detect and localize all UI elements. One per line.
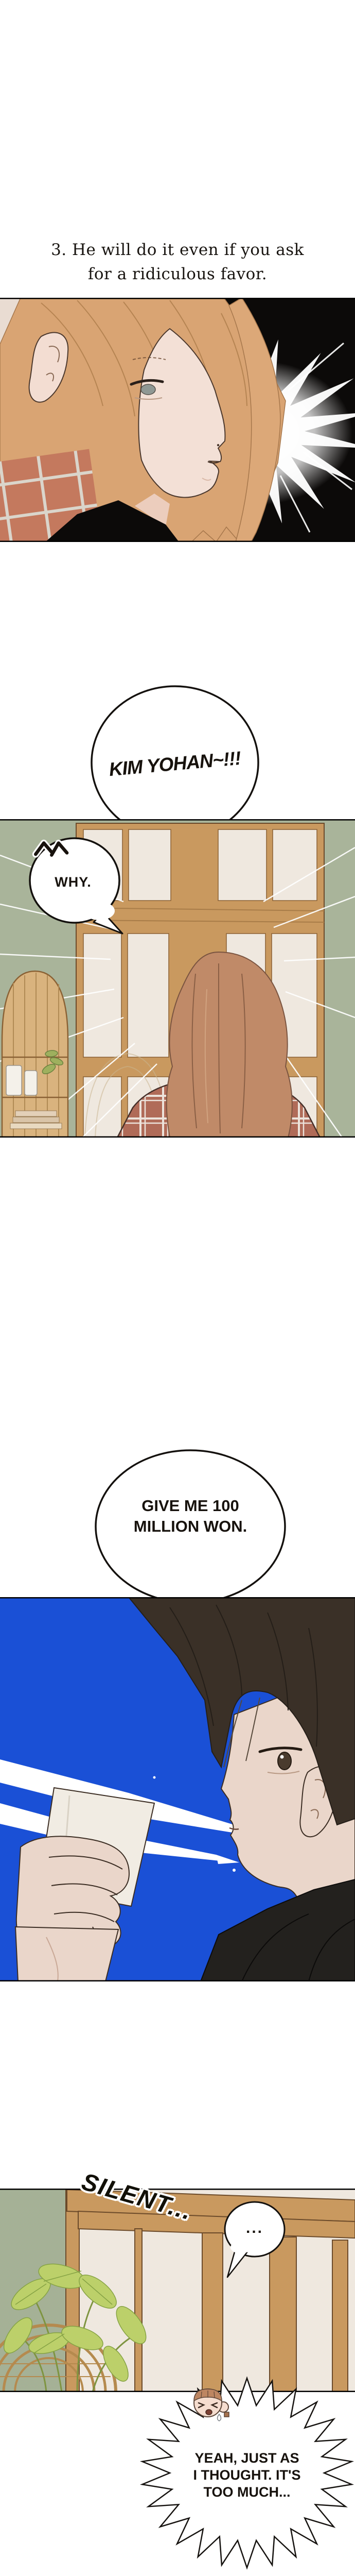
why-text: WHY. [55, 874, 92, 890]
birdcage-shelf [2, 971, 68, 1138]
demand-bubble: GIVE ME 100 MILLION WON. [90, 1445, 291, 1610]
webtoon-page: 3. He will do it even if you ask for a r… [0, 0, 355, 2576]
nostril [217, 444, 219, 446]
burst-text-line3: TOO MUCH... [203, 2484, 290, 2500]
ellipsis-text: ... [246, 2219, 263, 2236]
panel-2-artwork: WHY. [0, 819, 355, 1138]
chapter-title: 3. He will do it even if you ask for a r… [0, 238, 355, 286]
burst-bubble: YEAH, JUST AS I THOUGHT. IT'S TOO MUCH..… [134, 2369, 355, 2576]
chapter-title-line1: 3. He will do it even if you ask [0, 238, 355, 262]
panel-1-artwork [0, 298, 355, 542]
burst-text-line1: YEAH, JUST AS [194, 2450, 299, 2466]
panel-3-artwork [0, 1597, 355, 1981]
demand-text-line2: MILLION WON. [134, 1517, 247, 1535]
demand-text-line1: GIVE ME 100 [141, 1497, 239, 1515]
arm [15, 1927, 118, 1981]
chibi-mouth [206, 2410, 212, 2415]
burst-text-line2: I THOUGHT. IT'S [193, 2467, 301, 2483]
shelf-books [10, 1111, 62, 1129]
eye-iris [141, 384, 155, 395]
chapter-title-line2: for a ridiculous favor. [0, 262, 355, 286]
